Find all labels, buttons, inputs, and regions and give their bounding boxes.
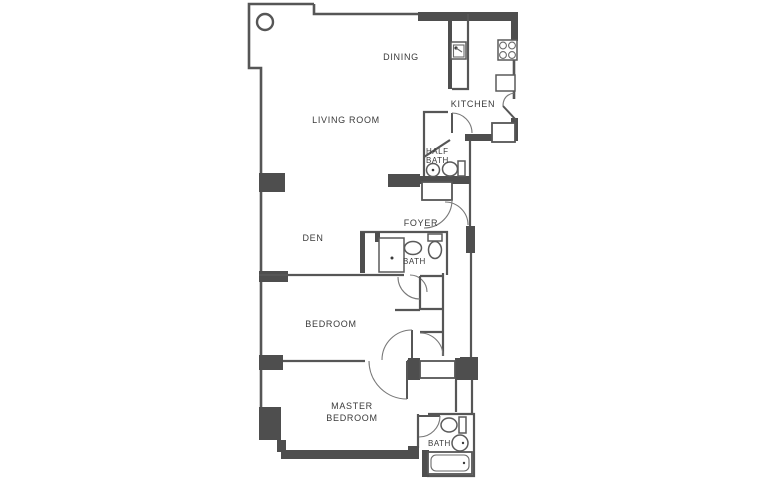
master-closet-walls: [456, 380, 472, 413]
master-bath-group: [408, 358, 477, 477]
left-wall: [249, 4, 314, 410]
entry-door-arc: [503, 93, 514, 106]
entry-closet: [492, 123, 515, 142]
master-bath-label: BATH: [428, 439, 451, 448]
hall-closet-walls: [395, 273, 443, 356]
dining-label: DINING: [383, 52, 419, 62]
master-sink: [452, 435, 468, 451]
drain-icon: [462, 442, 464, 444]
closet-jamb-left: [408, 358, 420, 380]
half-bath-label-1: HALF: [426, 147, 448, 156]
master-bedroom-label-2: BEDROOM: [326, 413, 377, 423]
living-room-label: LIVING ROOM: [312, 115, 380, 125]
bath-jamb: [408, 446, 419, 459]
half-bath-toilet-tank: [458, 161, 465, 176]
kitchen-label: KITCHEN: [451, 99, 495, 109]
master-bedroom-label-1: MASTER: [331, 401, 373, 411]
base-counter: [496, 75, 515, 91]
kitchen-fixtures: [448, 14, 517, 91]
drain-icon: [463, 462, 465, 464]
master-closet: [420, 361, 455, 378]
closet-jamb-right: [455, 358, 477, 380]
master-bath-door-arc: [419, 416, 440, 437]
hall-door-arc: [420, 333, 443, 356]
bedroom-group: [283, 273, 443, 399]
master-door-arc: [369, 361, 407, 399]
foyer-label: FOYER: [404, 218, 439, 228]
half-bath-door-arc: [452, 113, 472, 133]
foyer-pilaster: [388, 174, 420, 187]
drain-icon: [391, 257, 394, 260]
master-toilet: [441, 418, 457, 432]
drain-icon: [432, 169, 435, 172]
round-column: [257, 14, 273, 30]
half-bath-label-2: BATH: [426, 156, 449, 165]
left-pilaster-1: [259, 173, 285, 192]
den-right-wall: [360, 232, 365, 273]
bedroom-label: BEDROOM: [305, 319, 356, 329]
entry-door-leaf: [503, 106, 516, 120]
bath-door-arc: [410, 275, 427, 292]
right-pilaster-1: [466, 226, 475, 253]
floor-plan-svg: DINING KITCHEN LIVING ROOM HALF BATH FOY…: [0, 0, 768, 480]
floor-plan: DINING KITCHEN LIVING ROOM HALF BATH FOY…: [0, 0, 768, 480]
master-bottom-wall: [281, 450, 418, 459]
master-toilet-tank: [459, 417, 466, 433]
left-pilaster-3: [259, 355, 283, 370]
left-pilaster-2: [259, 271, 288, 282]
den-label: DEN: [302, 233, 323, 243]
top-wall: [314, 4, 420, 14]
closet-door-arc: [398, 277, 420, 299]
left-pilaster-4: [259, 407, 281, 440]
foyer-closet: [422, 182, 452, 200]
right-corner-wall: [511, 13, 518, 41]
shower: [379, 238, 404, 272]
bedroom-door-arc: [382, 330, 412, 360]
bath-toilet: [429, 242, 442, 259]
bath-label: BATH: [403, 257, 426, 266]
bath-toilet-tank: [428, 234, 442, 241]
bath-sink: [405, 242, 422, 255]
